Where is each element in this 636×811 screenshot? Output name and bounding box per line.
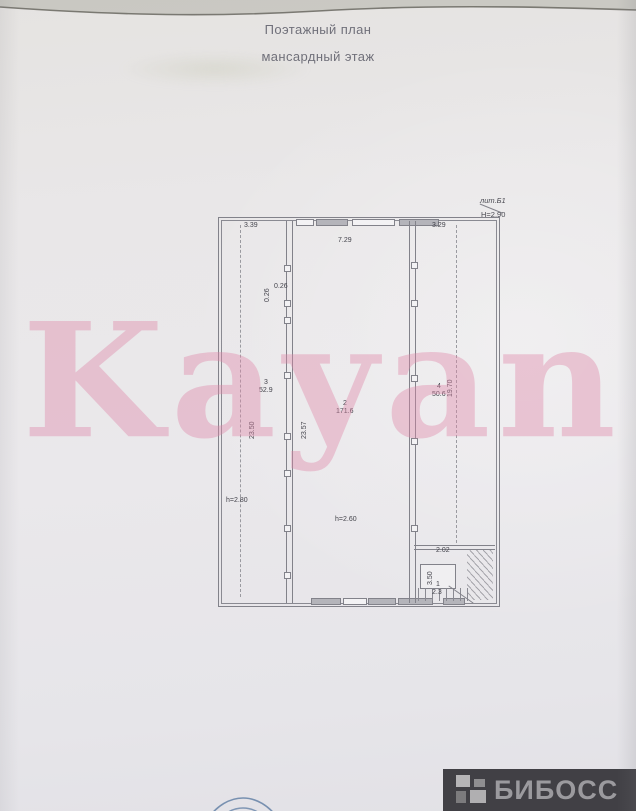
window: [368, 598, 396, 605]
dim-top-center: 7.29: [338, 237, 352, 244]
room-2-number: 2: [343, 400, 347, 407]
page-title: Поэтажный план: [0, 22, 636, 37]
dim-top-left: 3.39: [244, 222, 258, 229]
opening-mark: [411, 300, 418, 307]
biboss-logo-icon: [456, 775, 486, 805]
opening-mark: [284, 470, 291, 477]
dim-wall-offset-h: 0.26: [274, 283, 288, 290]
dim-top-right: 3.29: [432, 222, 446, 229]
dim-right-length: 19.70: [447, 379, 454, 397]
window: [316, 219, 348, 226]
opening-mark: [284, 433, 291, 440]
ceiling-height-left: h=2.80: [226, 497, 248, 504]
room-1-number: 1: [436, 581, 440, 588]
ceiling-height-center: h=2.60: [335, 516, 357, 523]
paper-top-edge: [0, 0, 636, 22]
window: [352, 219, 395, 226]
dim-stair-width: 2.02: [436, 547, 450, 554]
biboss-footer-bar: БИБОСС: [443, 769, 636, 811]
window: [311, 598, 341, 605]
opening-mark: [284, 317, 291, 324]
slope-line-right: [456, 225, 457, 543]
interior-wall-left: [286, 221, 293, 603]
opening-mark: [284, 265, 291, 272]
slope-line-left: [240, 225, 241, 597]
opening-mark: [411, 525, 418, 532]
dim-wall-offset-v: 0.26: [264, 288, 271, 302]
biboss-logo-text: БИБОСС: [494, 775, 618, 806]
room-3-number: 3: [264, 379, 268, 386]
document-photo: Поэтажный план мансардный этаж: [0, 0, 636, 811]
dim-center-length: 23.57: [301, 421, 308, 439]
opening-mark: [284, 372, 291, 379]
opening-mark: [411, 375, 418, 382]
opening-mark: [284, 525, 291, 532]
dim-left-length: 23.50: [249, 421, 256, 439]
opening-mark: [284, 572, 291, 579]
opening-mark: [411, 438, 418, 445]
room-4-number: 4: [437, 383, 441, 390]
stair-hatch: [467, 550, 493, 600]
building-height-label: Н=2.90: [481, 210, 505, 219]
page-subtitle: мансардный этаж: [0, 49, 636, 64]
floor-plan: 3.39 7.29 3.29 0.26 0.26 23.50 23.57 19.…: [218, 217, 500, 607]
room-4-area: 50.6: [432, 391, 446, 398]
opening-mark: [284, 300, 291, 307]
dim-stair-depth: 3.50: [427, 571, 434, 585]
room-1-area: 2.3: [432, 589, 442, 596]
window: [296, 219, 314, 226]
window: [343, 598, 367, 605]
room-3-area: 52.9: [259, 387, 273, 394]
opening-mark: [411, 262, 418, 269]
lit-label: лит.Б1: [480, 196, 506, 205]
room-2-area: 171.6: [336, 408, 354, 415]
